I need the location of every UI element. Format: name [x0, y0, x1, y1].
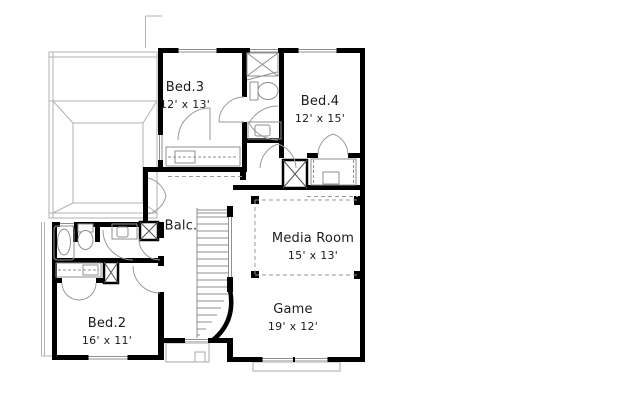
bed2-closet-door-arcs — [62, 283, 96, 300]
bed2-name: Bed.2 — [82, 315, 132, 332]
floor-plan-drawing — [0, 0, 620, 415]
room-label-game: Game 19' x 12' — [268, 301, 318, 335]
bed2-window — [87, 355, 130, 360]
game-dimensions: 19' x 12' — [268, 318, 318, 335]
shower-icon — [247, 53, 278, 80]
landing-window — [185, 338, 208, 343]
chase-x-box-balcony — [140, 222, 158, 240]
bed4-window — [297, 48, 339, 53]
bath-window — [250, 48, 278, 53]
chase-x-box-bed2 — [104, 262, 118, 283]
bed3-dimensions: 12' x 13' — [160, 96, 210, 113]
room-label-balcony: Balc. — [165, 218, 198, 235]
bed2-closet-shelf — [56, 263, 101, 277]
bay-window-outline — [166, 343, 209, 362]
garage-roof-outline — [49, 52, 157, 218]
media-dimensions: 15' x 13' — [272, 247, 354, 264]
sink-vanity-icon-jackjill-bath — [248, 122, 281, 139]
balcony-name: Balc. — [165, 218, 198, 235]
bed3-closet-shelf — [166, 147, 240, 166]
game-name: Game — [268, 301, 318, 318]
game-window — [261, 357, 330, 362]
floor-plan: Bed.3 12' x 13' Bed.4 12' x 15' Balc. Me… — [0, 0, 620, 415]
room-label-bed3: Bed.3 12' x 13' — [160, 79, 210, 113]
room-label-media: Media Room 15' x 13' — [272, 230, 354, 264]
landing-west-window — [158, 135, 163, 160]
bed4-closet-door-arcs — [318, 134, 348, 155]
porch-outline — [253, 362, 340, 371]
bed3-name: Bed.3 — [160, 79, 210, 96]
bed4-dimensions: 12' x 15' — [295, 110, 345, 127]
bed2-entry-door-arc — [133, 266, 160, 293]
room-label-bed2: Bed.2 16' x 11' — [82, 315, 132, 349]
bed4-closet-shelf — [311, 159, 356, 185]
bed3-entry-door-arc — [219, 97, 244, 122]
bed3-window — [177, 48, 219, 53]
media-name: Media Room — [272, 230, 354, 247]
bed2-dimensions: 16' x 11' — [82, 332, 132, 349]
bed4-name: Bed.4 — [295, 93, 345, 110]
jackjill-bath-door-arcs — [249, 106, 278, 140]
bed2-bath-door-arc — [139, 239, 160, 260]
toilet-icon-bath2 — [78, 224, 93, 250]
room-label-bed4: Bed.4 12' x 15' — [295, 93, 345, 127]
linen-x-box-hall — [283, 160, 307, 188]
toilet-icon-jackjill-bath — [250, 82, 278, 100]
